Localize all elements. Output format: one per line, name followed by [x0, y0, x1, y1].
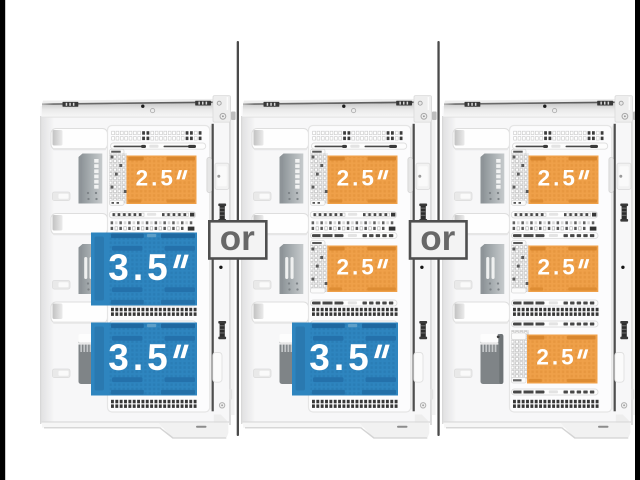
svg-text:2.5: 2.5 — [538, 165, 578, 190]
svg-text:3.5: 3.5 — [108, 247, 171, 288]
svg-text:or: or — [220, 219, 255, 258]
svg-text:2.5: 2.5 — [136, 165, 176, 190]
svg-text:2.5: 2.5 — [537, 254, 577, 279]
svg-text:3.5: 3.5 — [108, 337, 171, 378]
svg-text:2.5: 2.5 — [337, 165, 377, 190]
svg-text:2.5: 2.5 — [336, 254, 376, 279]
svg-text:or: or — [420, 219, 455, 258]
svg-text:2.5: 2.5 — [536, 345, 576, 370]
svg-text:3.5: 3.5 — [309, 337, 372, 378]
